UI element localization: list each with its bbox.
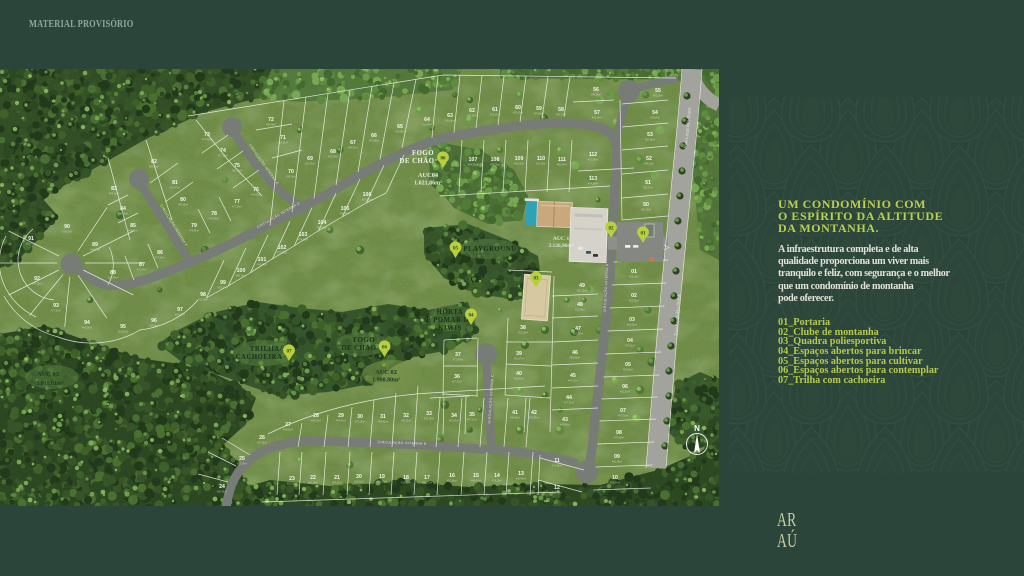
svg-text:468,35m²: 468,35m² xyxy=(514,163,524,166)
svg-text:78: 78 xyxy=(211,211,217,217)
svg-text:FOGO: FOGO xyxy=(412,150,434,157)
svg-text:03: 03 xyxy=(629,317,635,323)
svg-text:428,66m²: 428,66m² xyxy=(149,325,159,328)
svg-text:51: 51 xyxy=(645,180,651,186)
svg-text:472,98m²: 472,98m² xyxy=(155,257,165,260)
svg-text:05: 05 xyxy=(625,362,631,368)
svg-text:96: 96 xyxy=(151,318,157,324)
svg-text:451,40m²: 451,40m² xyxy=(340,213,350,216)
svg-text:428,11m²: 428,11m² xyxy=(629,276,639,279)
svg-text:41: 41 xyxy=(512,410,518,416)
svg-text:DE CHÃO: DE CHÃO xyxy=(399,157,434,165)
svg-text:38: 38 xyxy=(520,325,526,331)
svg-text:FOGO: FOGO xyxy=(353,337,375,344)
svg-text:44: 44 xyxy=(566,395,572,401)
svg-text:457,36m²: 457,36m² xyxy=(447,480,457,483)
svg-text:73: 73 xyxy=(204,132,210,138)
svg-text:425,32m²: 425,32m² xyxy=(629,300,639,303)
svg-text:402,58m²: 402,58m² xyxy=(32,283,42,286)
svg-text:477,20m²: 477,20m² xyxy=(232,206,242,209)
svg-text:81: 81 xyxy=(172,180,178,186)
svg-text:103: 103 xyxy=(299,232,308,238)
svg-text:469,59m²: 469,59m² xyxy=(623,369,633,372)
svg-text:3.811,61m²: 3.811,61m² xyxy=(36,381,64,387)
svg-text:437,36m²: 437,36m² xyxy=(369,140,379,143)
svg-text:37: 37 xyxy=(455,352,461,358)
svg-text:64: 64 xyxy=(424,117,430,123)
svg-text:471,45m²: 471,45m² xyxy=(552,465,562,468)
svg-text:80: 80 xyxy=(180,197,186,203)
svg-text:58: 58 xyxy=(558,107,564,113)
svg-text:107: 107 xyxy=(469,157,478,163)
svg-text:104: 104 xyxy=(318,220,327,226)
svg-text:444,41m²: 444,41m² xyxy=(336,420,346,423)
svg-text:425,83m²: 425,83m² xyxy=(26,243,36,246)
svg-text:87: 87 xyxy=(139,262,145,268)
svg-text:99: 99 xyxy=(220,280,226,286)
svg-text:447,27m²: 447,27m² xyxy=(467,419,477,422)
svg-text:451,75m²: 451,75m² xyxy=(424,418,434,421)
svg-text:459,88m²: 459,88m² xyxy=(266,124,276,127)
svg-text:N: N xyxy=(694,424,700,433)
svg-text:413,76m²: 413,76m² xyxy=(237,463,247,466)
svg-text:83: 83 xyxy=(111,186,117,192)
svg-text:79: 79 xyxy=(191,223,197,229)
svg-text:447,81m²: 447,81m² xyxy=(449,420,459,423)
svg-text:414,37m²: 414,37m² xyxy=(118,331,128,334)
svg-text:109: 109 xyxy=(515,156,524,162)
svg-text:112: 112 xyxy=(589,152,597,158)
svg-text:477,52m²: 477,52m² xyxy=(51,310,61,313)
svg-text:433,13m²: 433,13m² xyxy=(308,482,318,485)
svg-text:03: 03 xyxy=(534,276,540,281)
svg-text:35: 35 xyxy=(469,412,475,418)
svg-text:94: 94 xyxy=(84,320,90,326)
svg-text:421,67m²: 421,67m² xyxy=(170,187,180,190)
svg-text:410,27m²: 410,27m² xyxy=(643,187,653,190)
svg-text:02: 02 xyxy=(631,293,637,299)
svg-text:454,92m²: 454,92m² xyxy=(378,421,388,424)
svg-text:55: 55 xyxy=(655,88,661,94)
svg-text:403,40m²: 403,40m² xyxy=(592,117,602,120)
svg-text:59: 59 xyxy=(536,106,542,112)
svg-text:470,71m²: 470,71m² xyxy=(618,415,628,418)
svg-text:464,69m²: 464,69m² xyxy=(251,194,261,197)
svg-text:434,51m²: 434,51m² xyxy=(175,314,185,317)
svg-text:476,10m²: 476,10m² xyxy=(653,95,663,98)
svg-text:AUC 02: AUC 02 xyxy=(375,369,397,376)
svg-text:450,34m²: 450,34m² xyxy=(557,164,567,167)
svg-text:108: 108 xyxy=(491,157,500,163)
svg-text:102: 102 xyxy=(278,245,287,251)
svg-text:76: 76 xyxy=(253,187,259,193)
svg-text:AUC04: AUC04 xyxy=(418,172,439,179)
svg-text:18: 18 xyxy=(403,475,409,481)
svg-text:66: 66 xyxy=(371,133,377,139)
svg-text:40: 40 xyxy=(516,371,522,377)
svg-text:462,27m²: 462,27m² xyxy=(556,114,566,117)
svg-text:113: 113 xyxy=(589,176,597,182)
svg-text:23: 23 xyxy=(289,476,295,482)
svg-text:405,16m²: 405,16m² xyxy=(236,275,246,278)
svg-text:32: 32 xyxy=(403,413,409,419)
svg-text:AUC 1: AUC 1 xyxy=(553,236,570,242)
svg-text:25: 25 xyxy=(239,456,245,462)
svg-text:415,87m²: 415,87m² xyxy=(377,481,387,484)
svg-text:464,20m²: 464,20m² xyxy=(468,164,478,167)
svg-text:06: 06 xyxy=(441,156,447,161)
svg-text:426,60m²: 426,60m² xyxy=(445,120,455,123)
svg-text:105: 105 xyxy=(341,206,350,212)
svg-text:42: 42 xyxy=(531,410,537,416)
svg-text:47: 47 xyxy=(575,326,581,332)
svg-text:85: 85 xyxy=(130,223,136,229)
svg-text:08: 08 xyxy=(616,430,622,436)
svg-text:425,35m²: 425,35m² xyxy=(645,139,655,142)
svg-text:02: 02 xyxy=(609,226,615,231)
svg-text:09: 09 xyxy=(614,454,620,460)
svg-text:91: 91 xyxy=(28,236,34,242)
svg-text:468,18m²: 468,18m² xyxy=(612,461,622,464)
svg-text:101: 101 xyxy=(258,257,267,263)
svg-text:418,11m²: 418,11m² xyxy=(401,482,411,485)
svg-text:414,84m²: 414,84m² xyxy=(108,277,118,280)
svg-text:407,58m²: 407,58m² xyxy=(534,113,544,116)
svg-text:415,18m²: 415,18m² xyxy=(518,332,528,335)
svg-text:400,53m²: 400,53m² xyxy=(232,170,242,173)
svg-text:464,15m²: 464,15m² xyxy=(109,193,119,196)
svg-text:75: 75 xyxy=(234,163,240,169)
svg-text:01: 01 xyxy=(631,269,637,275)
svg-text:416,74m²: 416,74m² xyxy=(305,163,315,166)
svg-text:100: 100 xyxy=(237,268,246,274)
svg-text:403,84m²: 403,84m² xyxy=(610,482,620,485)
svg-text:434,83m²: 434,83m² xyxy=(298,239,308,242)
svg-text:60: 60 xyxy=(515,105,521,111)
svg-text:98: 98 xyxy=(200,292,206,298)
svg-text:86: 86 xyxy=(157,250,163,256)
svg-text:473,73m²: 473,73m² xyxy=(490,164,500,167)
svg-text:DE CHÃO: DE CHÃO xyxy=(341,344,376,352)
svg-text:404,25m²: 404,25m² xyxy=(317,227,327,230)
svg-text:454,24m²: 454,24m² xyxy=(591,94,601,97)
svg-text:14: 14 xyxy=(494,473,500,479)
svg-text:444,22m²: 444,22m² xyxy=(568,380,578,383)
svg-text:446,96m²: 446,96m² xyxy=(118,213,128,216)
svg-text:478,11m²: 478,11m² xyxy=(492,480,502,483)
svg-text:421,94m²: 421,94m² xyxy=(529,417,539,420)
svg-text:475,43m²: 475,43m² xyxy=(614,437,624,440)
svg-text:84: 84 xyxy=(120,206,126,212)
svg-text:49: 49 xyxy=(579,283,585,289)
svg-text:HORTA: HORTA xyxy=(437,309,464,316)
svg-text:453,67m²: 453,67m² xyxy=(514,358,524,361)
svg-text:89: 89 xyxy=(92,242,98,248)
svg-text:480,46m²: 480,46m² xyxy=(217,491,227,494)
svg-text:AUC 03: AUC 03 xyxy=(37,371,59,378)
svg-text:67: 67 xyxy=(350,140,356,146)
svg-text:71: 71 xyxy=(280,135,286,141)
svg-text:449,85m²: 449,85m² xyxy=(510,417,520,420)
svg-text:56: 56 xyxy=(593,87,599,93)
svg-text:04: 04 xyxy=(469,313,475,318)
svg-text:24: 24 xyxy=(219,484,225,490)
svg-text:477,73m²: 477,73m² xyxy=(564,402,574,405)
svg-text:449,47m²: 449,47m² xyxy=(471,480,481,483)
svg-text:406,45m²: 406,45m² xyxy=(570,357,580,360)
svg-text:418,81m²: 418,81m² xyxy=(514,378,524,381)
svg-text:13: 13 xyxy=(518,471,524,477)
svg-text:471,47m²: 471,47m² xyxy=(453,359,463,362)
svg-text:435,53m²: 435,53m² xyxy=(467,115,477,118)
svg-text:TRILHA/: TRILHA/ xyxy=(250,346,282,353)
svg-text:16: 16 xyxy=(449,473,455,479)
svg-text:06: 06 xyxy=(622,384,628,390)
svg-text:74: 74 xyxy=(220,148,226,154)
svg-text:48: 48 xyxy=(577,302,583,308)
svg-text:417,33m²: 417,33m² xyxy=(218,155,228,158)
svg-text:11: 11 xyxy=(554,458,560,464)
svg-text:39: 39 xyxy=(516,351,522,357)
svg-text:01: 01 xyxy=(641,231,647,236)
svg-text:07: 07 xyxy=(620,408,626,414)
svg-text:434,81m²: 434,81m² xyxy=(257,264,267,267)
svg-text:33: 33 xyxy=(426,411,432,417)
svg-text:31: 31 xyxy=(380,414,386,420)
svg-text:92: 92 xyxy=(34,276,40,282)
svg-text:429,22m²: 429,22m² xyxy=(401,420,411,423)
svg-text:433,31m²: 433,31m² xyxy=(354,481,364,484)
svg-text:453,18m²: 453,18m² xyxy=(536,163,546,166)
svg-text:106: 106 xyxy=(363,192,372,198)
svg-text:407,13m²: 407,13m² xyxy=(257,442,267,445)
svg-text:406,24m²: 406,24m² xyxy=(286,176,296,179)
svg-text:421,40m²: 421,40m² xyxy=(278,142,288,145)
svg-text:19: 19 xyxy=(379,474,385,480)
svg-text:478,99m²: 478,99m² xyxy=(189,230,199,233)
svg-text:KIWIS: KIWIS xyxy=(438,325,462,332)
svg-text:43: 43 xyxy=(562,417,568,423)
svg-text:26: 26 xyxy=(259,435,265,441)
svg-text:460,68m²: 460,68m² xyxy=(627,324,637,327)
svg-text:21: 21 xyxy=(334,475,340,481)
svg-text:406,17m²: 406,17m² xyxy=(422,482,432,485)
svg-text:77: 77 xyxy=(234,199,240,205)
svg-text:415,84m²: 415,84m² xyxy=(650,117,660,120)
svg-text:10: 10 xyxy=(612,475,618,481)
svg-text:27: 27 xyxy=(285,422,291,428)
svg-text:400,65m²: 400,65m² xyxy=(82,327,92,330)
svg-text:411,99m²: 411,99m² xyxy=(588,159,598,162)
svg-text:445,46m²: 445,46m² xyxy=(516,478,526,481)
svg-text:1.900.80m²: 1.900.80m² xyxy=(372,378,400,384)
svg-text:15: 15 xyxy=(473,473,479,479)
svg-text:07: 07 xyxy=(287,349,293,354)
svg-text:448,81m²: 448,81m² xyxy=(283,429,293,432)
svg-text:62: 62 xyxy=(469,108,475,114)
svg-text:435,86m²: 435,86m² xyxy=(560,424,570,427)
svg-text:405,58m²: 405,58m² xyxy=(178,204,188,207)
svg-text:411,49m²: 411,49m² xyxy=(198,299,208,302)
svg-text:428,63m²: 428,63m² xyxy=(395,131,405,134)
svg-text:54: 54 xyxy=(652,110,658,116)
svg-text:CACHOEIRA: CACHOEIRA xyxy=(236,354,283,361)
svg-text:437,31m²: 437,31m² xyxy=(287,483,297,486)
svg-text:467,26m²: 467,26m² xyxy=(573,333,583,336)
svg-text:475,81m²: 475,81m² xyxy=(625,345,635,348)
svg-text:475,18m²: 475,18m² xyxy=(328,156,338,159)
svg-text:454,30m²: 454,30m² xyxy=(149,166,159,169)
svg-text:72: 72 xyxy=(268,117,274,123)
svg-text:418,71m²: 418,71m² xyxy=(552,492,562,495)
svg-text:422,87m²: 422,87m² xyxy=(218,287,228,290)
svg-text:449,23m²: 449,23m² xyxy=(348,147,358,150)
svg-text:63: 63 xyxy=(447,113,453,119)
svg-text:93: 93 xyxy=(53,303,59,309)
svg-text:1.021,86m²: 1.021,86m² xyxy=(414,181,442,187)
svg-text:52: 52 xyxy=(646,156,652,162)
svg-text:06: 06 xyxy=(382,345,388,350)
svg-text:20: 20 xyxy=(356,474,362,480)
svg-text:36: 36 xyxy=(454,374,460,380)
svg-text:46: 46 xyxy=(572,350,578,356)
svg-text:97: 97 xyxy=(177,307,183,313)
svg-text:400,62m²: 400,62m² xyxy=(513,112,523,115)
svg-text:410,30m²: 410,30m² xyxy=(577,290,587,293)
svg-text:411,54m²: 411,54m² xyxy=(137,269,147,272)
svg-text:472,18m²: 472,18m² xyxy=(355,421,365,424)
svg-text:04: 04 xyxy=(627,338,633,344)
svg-text:29: 29 xyxy=(338,413,344,419)
svg-text:95: 95 xyxy=(120,324,126,330)
svg-text:22: 22 xyxy=(310,475,316,481)
svg-text:410,32m²: 410,32m² xyxy=(620,391,630,394)
svg-text:05: 05 xyxy=(453,246,459,251)
svg-text:61: 61 xyxy=(492,107,498,113)
svg-text:82: 82 xyxy=(151,159,157,165)
svg-text:426,61m²: 426,61m² xyxy=(62,231,72,234)
svg-text:70: 70 xyxy=(288,169,294,175)
svg-text:477,29m²: 477,29m² xyxy=(277,252,287,255)
svg-text:420,88m²: 420,88m² xyxy=(362,199,372,202)
svg-text:466,85m²: 466,85m² xyxy=(128,230,138,233)
svg-text:111: 111 xyxy=(558,157,566,163)
svg-text:17: 17 xyxy=(424,475,430,481)
svg-text:34: 34 xyxy=(451,413,457,419)
svg-text:447,44m²: 447,44m² xyxy=(202,139,212,142)
svg-text:442,11m²: 442,11m² xyxy=(644,163,654,166)
svg-text:406,32m²: 406,32m² xyxy=(332,482,342,485)
svg-text:12: 12 xyxy=(554,485,560,491)
svg-text:30: 30 xyxy=(357,414,363,420)
svg-text:28: 28 xyxy=(313,413,319,419)
svg-text:3.126,96m²: 3.126,96m² xyxy=(549,243,574,249)
svg-text:469,12m²: 469,12m² xyxy=(641,209,651,212)
svg-text:446,67m²: 446,67m² xyxy=(90,249,100,252)
svg-text:411,44m²: 411,44m² xyxy=(422,124,432,127)
svg-text:65: 65 xyxy=(397,124,403,130)
svg-text:442,80m²: 442,80m² xyxy=(209,218,219,221)
svg-text:53: 53 xyxy=(647,132,653,138)
svg-text:45: 45 xyxy=(570,373,576,379)
svg-text:405,35m²: 405,35m² xyxy=(490,114,500,117)
svg-text:417,21m²: 417,21m² xyxy=(452,381,462,384)
svg-text:110: 110 xyxy=(537,156,545,162)
svg-text:90: 90 xyxy=(64,224,70,230)
svg-text:57: 57 xyxy=(594,110,600,116)
svg-text:50: 50 xyxy=(643,202,649,208)
svg-text:68: 68 xyxy=(330,149,336,155)
svg-text:422,90m²: 422,90m² xyxy=(575,309,585,312)
svg-text:69: 69 xyxy=(307,156,313,162)
svg-text:PLAYGROUND: PLAYGROUND xyxy=(463,246,516,253)
svg-text:474,28m²: 474,28m² xyxy=(588,183,598,186)
svg-text:88: 88 xyxy=(110,270,116,276)
svg-text:454,73m²: 454,73m² xyxy=(311,420,321,423)
